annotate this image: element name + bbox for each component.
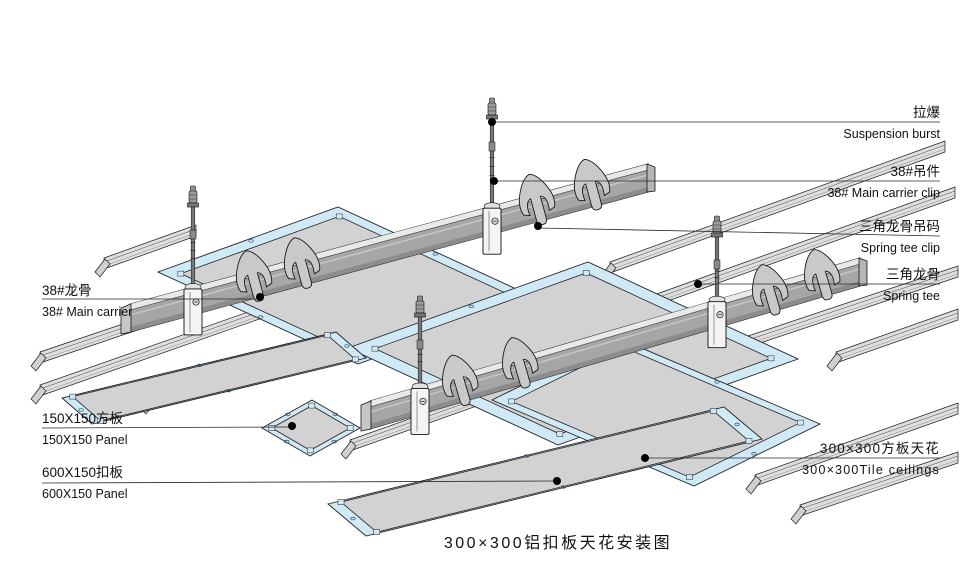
leader-dot — [553, 477, 561, 485]
label-spring-tee-clip: 三角龙骨吊码 Spring tee clip — [859, 218, 940, 257]
leader-dot — [641, 454, 649, 462]
ceiling-panels — [62, 207, 820, 536]
leader-dot — [488, 118, 496, 126]
label-main-carrier: 38#龙骨 38# Main carrier — [42, 282, 132, 321]
label-suspension-burst: 拉爆 Suspension burst — [843, 104, 940, 143]
leader-dot — [490, 177, 498, 185]
label-en: 38# Main carrier clip — [827, 185, 940, 202]
label-spring-tee: 三角龙骨 Spring tee — [883, 266, 940, 305]
leader-dot — [534, 222, 542, 230]
label-zh: 300×300方板天花 — [802, 440, 940, 457]
label-zh: 38#龙骨 — [42, 282, 132, 299]
label-zh: 38#吊件 — [827, 163, 940, 180]
label-main-carrier-clip: 38#吊件 38# Main carrier clip — [827, 163, 940, 202]
label-zh: 三角龙骨 — [883, 266, 940, 283]
label-tile-ceilings: 300×300方板天花 300×300Tile ceilings — [802, 440, 940, 479]
label-en: 38# Main carrier — [42, 304, 132, 321]
label-en: 150X150 Panel — [42, 432, 128, 449]
label-en: 300×300Tile ceilings — [802, 462, 940, 479]
label-en: Suspension burst — [843, 126, 940, 143]
label-en: Spring tee clip — [859, 240, 940, 257]
diagram-title: 300×300铝扣板天花安装图 — [388, 529, 728, 553]
label-zh: 三角龙骨吊码 — [859, 218, 940, 235]
main-carrier-clip — [184, 289, 202, 335]
ceiling-installation-diagram: 拉爆 Suspension burst 38#吊件 38# Main carri… — [0, 0, 960, 562]
main-carrier-clip — [483, 208, 501, 254]
label-150-panel: 150X150方板 150X150 Panel — [42, 410, 128, 449]
leader-dot — [694, 280, 702, 288]
main-carrier-clip — [411, 388, 429, 434]
label-zh: 拉爆 — [843, 104, 940, 121]
label-zh: 150X150方板 — [42, 410, 128, 427]
label-zh: 600X150扣板 — [42, 464, 128, 481]
leader-dot — [256, 293, 264, 301]
label-600-panel: 600X150扣板 600X150 Panel — [42, 464, 128, 503]
leader-dot — [288, 422, 296, 430]
main-carrier-clip — [708, 302, 726, 348]
label-en: Spring tee — [883, 288, 940, 305]
label-en: 600X150 Panel — [42, 486, 128, 503]
